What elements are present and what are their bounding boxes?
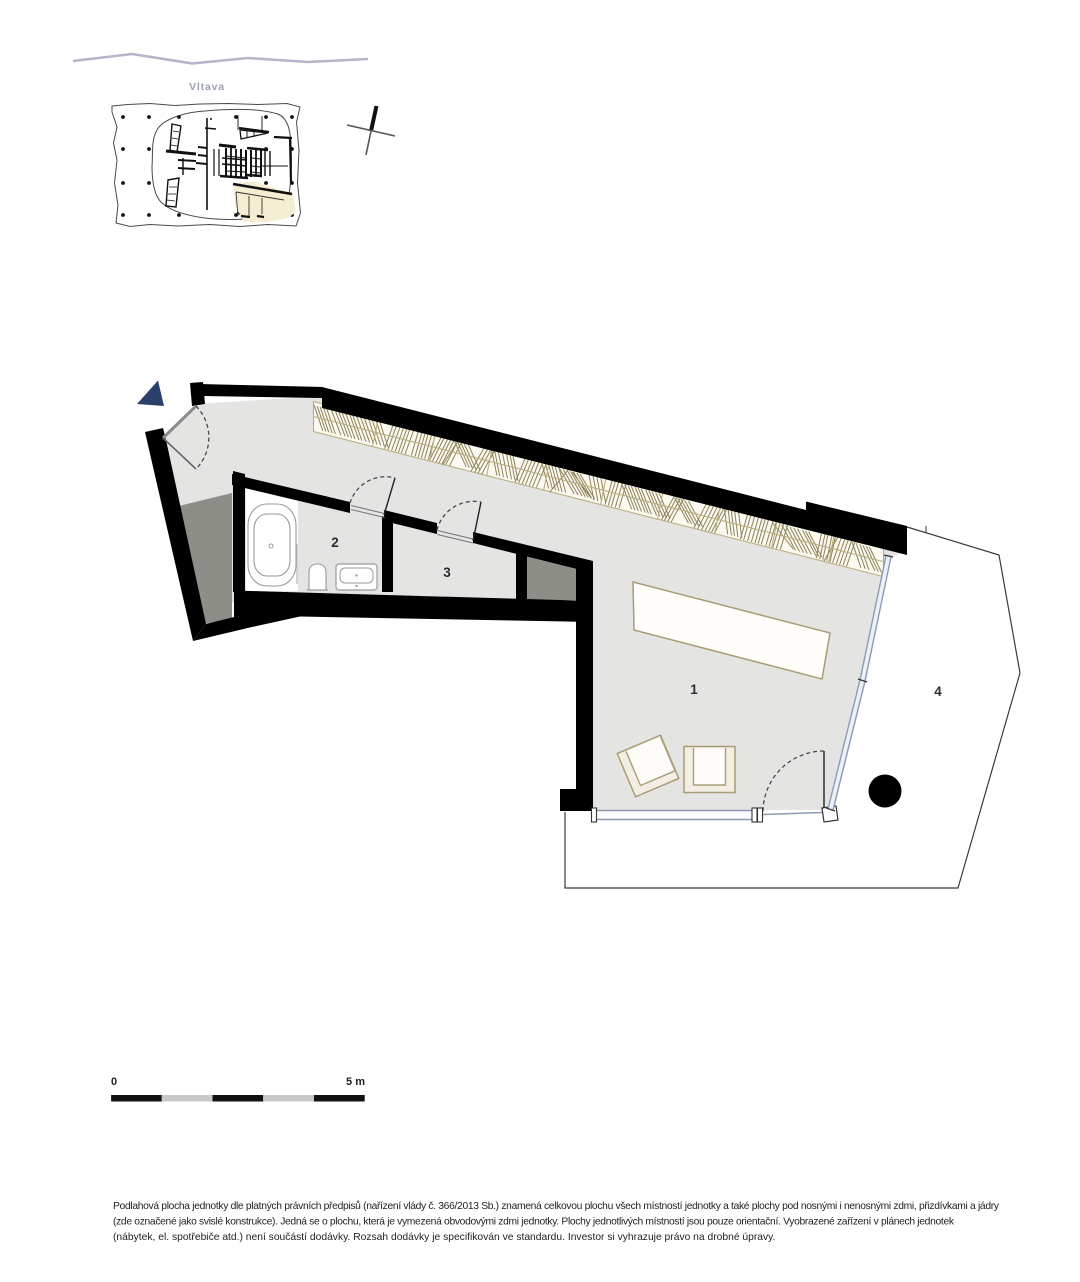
svg-text:Vltava: Vltava (189, 81, 225, 93)
svg-text:0: 0 (111, 1076, 117, 1088)
svg-text:2: 2 (331, 535, 339, 550)
svg-text:Podlahová plocha jednotky dle: Podlahová plocha jednotky dle platných p… (113, 1200, 1000, 1212)
svg-text:(zde označené jako svislé kons: (zde označené jako svislé konstrukce). J… (113, 1217, 955, 1228)
svg-text:5 m: 5 m (346, 1076, 365, 1088)
svg-text:4: 4 (934, 684, 942, 699)
svg-text:1: 1 (690, 682, 698, 697)
svg-text:3: 3 (443, 565, 451, 580)
svg-text:(nábytek, el. spotřebiče atd.): (nábytek, el. spotřebiče atd.) není souč… (113, 1232, 775, 1243)
